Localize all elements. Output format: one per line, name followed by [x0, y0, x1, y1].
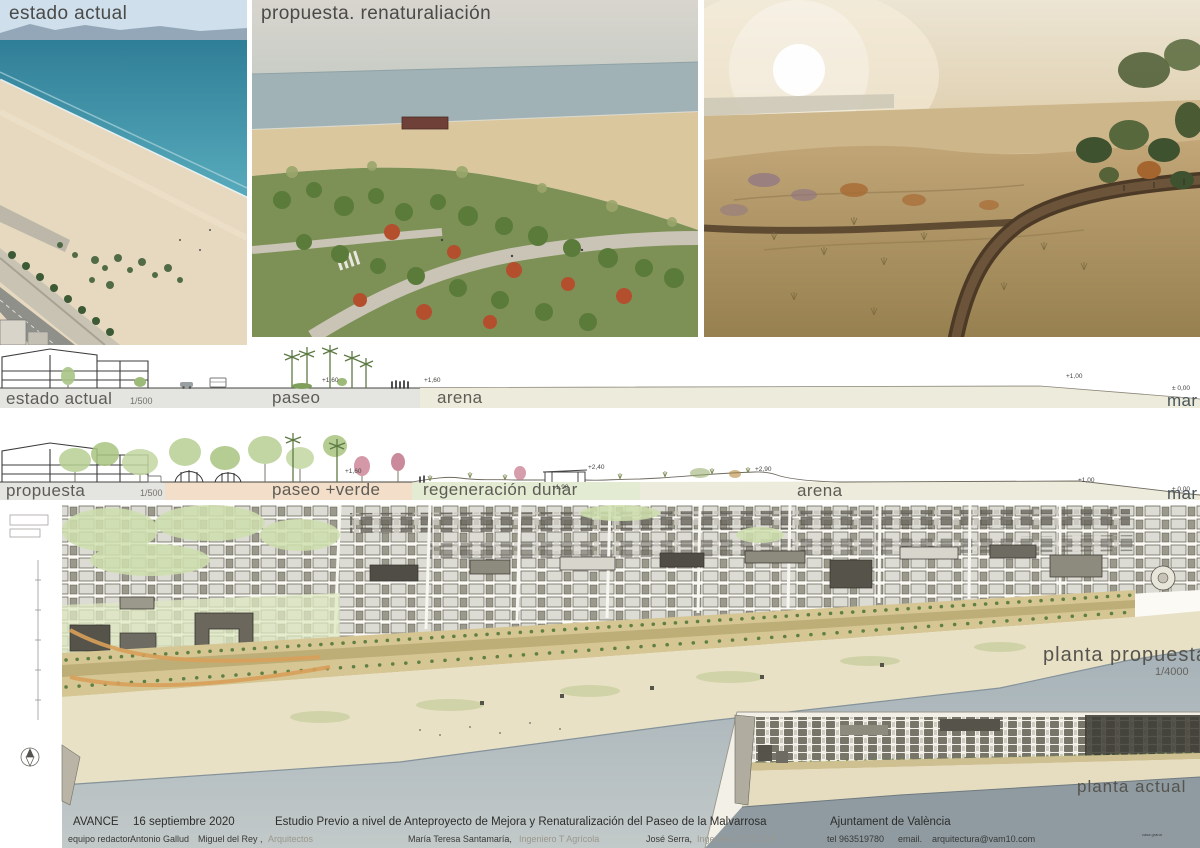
elevation-annotation: +1,60: [424, 377, 440, 384]
footer-title: Estudio Previo a nivel de Anteproyecto d…: [275, 816, 767, 828]
footer-tel: tel 963519780: [827, 834, 884, 844]
image-title-estado-actual: estado actual: [9, 3, 127, 25]
elevation-annotation: ± 0,00: [1172, 486, 1190, 493]
section2-label: propuesta: [6, 481, 85, 501]
zone-mar-label: mar: [1167, 391, 1197, 411]
footer-team-role: Arquitectos: [268, 834, 313, 844]
elevation-annotation: +1,90: [552, 484, 568, 491]
image-title-propuesta: propuesta. renaturaliación: [261, 3, 491, 25]
renaturalization-render-illustration: [252, 0, 698, 337]
image-dunes-render: [704, 0, 1200, 337]
elevation-annotation: +1,00: [1078, 477, 1094, 484]
section-drawing-estado-actual: [0, 345, 1200, 410]
footer-team-role: Ingeniero T.S C.C.P: [697, 834, 776, 844]
footer-date: 16 septiembre 2020: [133, 816, 235, 828]
footer-client: Ajuntament de València: [830, 816, 951, 828]
footer-team-role: Ingeniero T Agrícola: [519, 834, 599, 844]
section1-label: estado actual: [6, 389, 112, 409]
zone-arena2-label: arena: [797, 481, 842, 501]
zone-paseo-label: paseo: [272, 388, 320, 408]
footer-phase: AVANCE: [73, 816, 119, 828]
zone-paseo-verde-label: paseo +verde: [272, 480, 380, 500]
presentation-board: estado actual: [0, 0, 1200, 848]
plan-actual-title: planta actual: [1077, 777, 1186, 797]
elevation-annotation: +2,90: [755, 466, 771, 473]
elevation-annotation: +1,60: [345, 468, 361, 475]
zone-arena-label: arena: [437, 388, 482, 408]
footer-team-name: Miguel del Rey ,: [198, 834, 263, 844]
footer-team-label: equipo redactor.: [68, 834, 133, 844]
elevation-annotation: +1,00: [1066, 373, 1082, 380]
footer-team-name: Antonio Gallud: [130, 834, 189, 844]
plan-drawing: [0, 505, 1200, 848]
footer-team-name: José Serra,: [646, 834, 692, 844]
footer-email: arquitectura@vam10.com: [932, 834, 1035, 844]
image-propuesta-render: propuesta. renaturaliación: [252, 0, 698, 337]
dune-path-render-illustration: [704, 0, 1200, 337]
image-estado-actual: estado actual: [0, 0, 247, 345]
micro-caption: casa grana: [1142, 832, 1162, 837]
footer-email-label: email.: [898, 834, 922, 844]
plan-propuesta-title: planta propuesta: [1043, 644, 1200, 667]
elevation-annotation: +2,40: [588, 464, 604, 471]
elevation-annotation: +1,60: [322, 377, 338, 384]
elevation-annotation: ± 0,00: [1172, 385, 1190, 392]
section2-scale: 1/500: [140, 488, 163, 498]
footer-team-name: María Teresa Santamaría,: [408, 834, 512, 844]
section1-scale: 1/500: [130, 396, 153, 406]
plan-propuesta-scale: 1/4000: [1155, 666, 1189, 678]
aerial-beach-illustration: [0, 0, 247, 345]
